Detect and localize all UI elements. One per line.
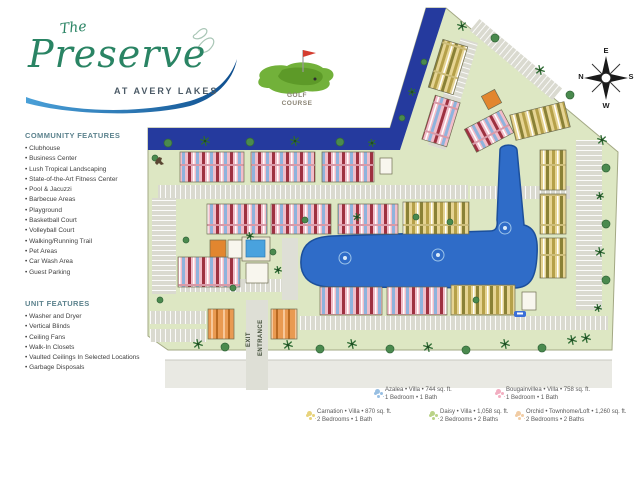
bush-tree-icon (270, 249, 276, 255)
garage-building (208, 309, 234, 339)
feature-item: Vertical Blinds (25, 322, 175, 332)
bush-tree-icon (538, 344, 546, 352)
swimming-pool (246, 240, 265, 257)
parking-lot (158, 185, 468, 199)
residential-building (180, 152, 244, 182)
community-features: COMMUNITY FEATURES ClubhouseBusiness Cen… (25, 131, 175, 278)
golf-hole-icon (314, 78, 317, 81)
bush-tree-icon (491, 34, 499, 42)
feature-item: Ceiling Fans (25, 333, 175, 343)
legend-line1: Bougainvillea • Villa • 758 sq. ft. (506, 386, 590, 394)
legend-item-carnation: Carnation • Villa • 870 sq. ft. 2 Bedroo… (307, 408, 391, 424)
public-road (165, 360, 612, 388)
legend-item-daisy: Daisy • Villa • 1,058 sq. ft. 2 Bedrooms… (430, 408, 508, 424)
feature-item: Vaulted Ceilings In Selected Locations (25, 353, 175, 363)
residential-building (540, 194, 566, 234)
feature-item: State-of-the-Art Fitness Center (25, 175, 175, 185)
legend-item-orchid: Orchid • Townhome/Loft • 1,260 sq. ft. 2… (516, 408, 626, 424)
feature-item: Barbecue Areas (25, 195, 175, 205)
bush-tree-icon (566, 91, 574, 99)
legend-line2: 2 Bedrooms • 1 Bath (317, 416, 391, 424)
feature-item: Volleyball Court (25, 226, 175, 236)
azalea-flower-icon (375, 389, 380, 394)
compass-letter-right: S (626, 72, 636, 81)
bush-tree-icon (399, 115, 405, 121)
residential-building (387, 287, 447, 315)
legend-line1: Carnation • Villa • 870 sq. ft. (317, 408, 391, 416)
feature-item: Pool & Jacuzzi (25, 185, 175, 195)
bush-tree-icon (230, 285, 236, 291)
bush-tree-icon (602, 276, 610, 284)
residential-building (251, 152, 315, 182)
bush-tree-icon (386, 345, 394, 353)
unit-features-list: Washer and DryerVertical BlindsCeiling F… (25, 312, 175, 374)
legend-line2: 2 Bedrooms • 2 Baths (440, 416, 508, 424)
parking-lot (576, 140, 602, 310)
feature-item: Basketball Court (25, 216, 175, 226)
amenity-building (246, 263, 268, 283)
feature-item: Pet Areas (25, 247, 175, 257)
bush-tree-icon (602, 164, 610, 172)
bush-tree-icon (462, 346, 470, 354)
unit-features-title: UNIT FEATURES (25, 299, 175, 308)
compass-letter-left: N (576, 72, 586, 81)
residential-building (320, 287, 382, 315)
feature-item: Washer and Dryer (25, 312, 175, 322)
feature-item: Walking/Running Trail (25, 237, 175, 247)
garage-building (271, 309, 297, 339)
feature-item: Car Wash Area (25, 257, 175, 267)
bush-tree-icon (473, 297, 479, 303)
legend-item-bougainvillea: Bougainvillea • Villa • 758 sq. ft. 1 Be… (496, 386, 590, 402)
legend-item-azalea: Azalea • Villa • 744 sq. ft. 1 Bedroom •… (375, 386, 452, 402)
sport-court (210, 240, 226, 257)
bush-tree-icon (183, 237, 189, 243)
residential-building (338, 204, 398, 234)
logo: The Preserve AT AVERY LAKES (0, 0, 250, 120)
residential-building (540, 238, 566, 278)
bush-tree-icon (447, 219, 453, 225)
bush-tree-icon (413, 214, 419, 220)
amenity-building (228, 240, 242, 258)
legend-line1: Orchid • Townhome/Loft • 1,260 sq. ft. (526, 408, 626, 416)
carnation-flower-icon (307, 411, 312, 416)
legend-line1: Daisy • Villa • 1,058 sq. ft. (440, 408, 508, 416)
feature-item: Guest Parking (25, 268, 175, 278)
residential-building (322, 152, 374, 182)
parking-lot (300, 316, 608, 330)
residential-building (540, 150, 566, 190)
logo-name: Preserve (28, 32, 206, 76)
bush-tree-icon (336, 138, 344, 146)
bush-tree-icon (316, 345, 324, 353)
community-features-title: COMMUNITY FEATURES (25, 131, 175, 140)
feature-item: Playground (25, 206, 175, 216)
logo-subtitle: AT AVERY LAKES (114, 86, 218, 96)
residential-building (451, 285, 515, 315)
bush-tree-icon (302, 217, 308, 223)
car-icon (514, 311, 526, 317)
entrance-label: ENTRANCE (258, 319, 264, 356)
bougainvillea-flower-icon (496, 389, 501, 394)
golf-label-line1: GOLF (267, 92, 327, 100)
compass-icon (584, 56, 628, 100)
site-plan-page: The Preserve AT AVERY LAKES COMMUNITY FE… (0, 0, 640, 480)
amenity-building (522, 292, 536, 310)
bush-tree-icon (246, 138, 254, 146)
community-features-list: ClubhouseBusiness CenterLush Tropical La… (25, 144, 175, 278)
legend-line2: 1 Bedroom • 1 Bath (506, 394, 590, 402)
feature-item: Clubhouse (25, 144, 175, 154)
residential-building (271, 204, 331, 234)
unit-features: UNIT FEATURES Washer and DryerVertical B… (25, 299, 175, 374)
legend-line1: Azalea • Villa • 744 sq. ft. (385, 386, 452, 394)
feature-item: Business Center (25, 154, 175, 164)
legend-line2: 2 Bedrooms • 2 Baths (526, 416, 626, 424)
bush-tree-icon (421, 59, 427, 65)
golf-course-label: GOLF COURSE (267, 92, 327, 108)
compass-letter-top: E (601, 46, 611, 55)
orchid-flower-icon (516, 411, 521, 416)
feature-item: Lush Tropical Landscaping (25, 165, 175, 175)
feature-item: Walk-In Closets (25, 343, 175, 353)
golf-label-line2: COURSE (267, 100, 327, 108)
bush-tree-icon (602, 220, 610, 228)
golf-course (258, 50, 333, 94)
feature-item: Garbage Disposals (25, 363, 175, 373)
residential-building (178, 257, 240, 287)
residential-building (207, 204, 267, 234)
bush-tree-icon (221, 343, 229, 351)
road (282, 238, 298, 300)
golf-flag-icon (303, 50, 316, 57)
amenity-building (380, 158, 392, 174)
exit-label: EXIT (246, 332, 252, 347)
legend-line2: 1 Bedroom • 1 Bath (385, 394, 452, 402)
compass-letter-bottom: W (601, 101, 611, 110)
daisy-flower-icon (430, 411, 435, 416)
